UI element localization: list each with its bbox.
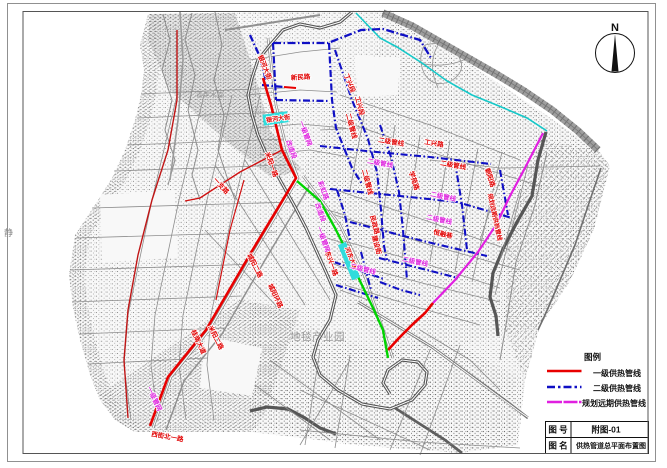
svg-text:N: N bbox=[611, 22, 619, 34]
svg-text:图例: 图例 bbox=[584, 352, 602, 362]
svg-text:规划远期供热管线: 规划远期供热管线 bbox=[582, 398, 646, 408]
svg-text:图 号: 图 号 bbox=[548, 425, 568, 435]
svg-text:一级供热管线: 一级供热管线 bbox=[593, 368, 641, 378]
svg-text:静: 静 bbox=[4, 227, 13, 238]
svg-text:图 名: 图 名 bbox=[548, 441, 567, 451]
svg-text:青年水库: 青年水库 bbox=[196, 90, 224, 99]
svg-text:附图-01: 附图-01 bbox=[591, 425, 621, 435]
svg-text:地毯产业园: 地毯产业园 bbox=[290, 330, 345, 343]
svg-text:供热管道总平面布置图: 供热管道总平面布置图 bbox=[575, 441, 646, 450]
svg-text:二级供热管线: 二级供热管线 bbox=[593, 383, 641, 393]
